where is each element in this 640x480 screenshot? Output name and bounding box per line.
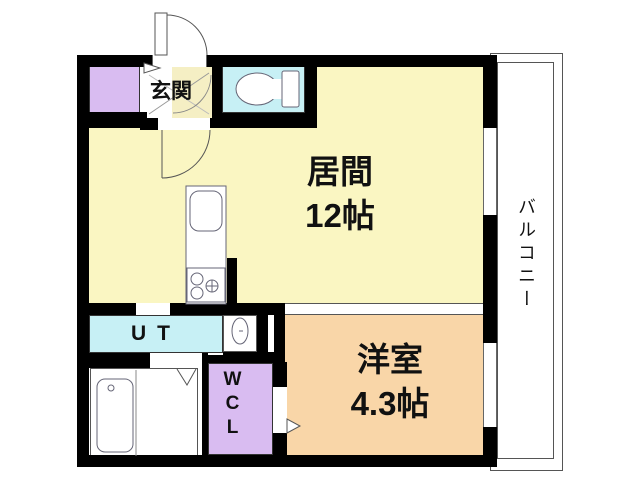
living-room-name: 居間	[274, 150, 406, 194]
entrance-living-doorway	[158, 118, 210, 130]
wall-living-bottom	[89, 303, 285, 315]
wall-below-closet	[89, 112, 147, 128]
living-room-size: 12帖	[274, 194, 406, 238]
western-room-label: 洋室 4.3帖	[324, 338, 456, 425]
wall-kitchen-stub	[227, 258, 237, 303]
bathroom	[90, 368, 198, 458]
entrance-door-swing-icon	[155, 13, 207, 55]
bathroom-doorway	[150, 353, 202, 368]
entrance-label: 玄関	[150, 75, 192, 105]
wall-left	[77, 55, 89, 467]
wall-wcl-top	[208, 355, 273, 363]
wall-washbasin-stub	[257, 315, 268, 352]
living-western-sliding-door	[285, 303, 483, 315]
balcony-label: バルコニー	[513, 197, 539, 312]
entrance-doorway	[152, 55, 207, 67]
western-room-size: 4.3帖	[324, 382, 456, 426]
living-window	[483, 128, 497, 215]
wall-bottom	[77, 455, 497, 467]
floor-plan: 玄関 居間 12帖 洋室 4.3帖 UT WCL バルコニー	[0, 0, 640, 480]
washbasin-area	[223, 315, 257, 352]
wall-below-entrance-left	[140, 118, 158, 130]
entrance-closet	[89, 65, 140, 113]
western-room-name: 洋室	[324, 338, 456, 382]
wcl-doorway	[273, 387, 287, 433]
wall-wcl-left	[202, 355, 208, 455]
wall-top	[77, 55, 497, 67]
western-room-window	[483, 343, 497, 427]
wall-toilet-right	[305, 55, 317, 128]
living-utility-doorway	[136, 303, 170, 315]
utility-label: UT	[131, 322, 181, 346]
living-room-label: 居間 12帖	[274, 150, 406, 237]
living-room-upper	[317, 67, 483, 128]
wall-below-toilet	[212, 113, 317, 128]
wcl-label: WCL	[221, 369, 243, 441]
toilet-room	[222, 65, 305, 113]
